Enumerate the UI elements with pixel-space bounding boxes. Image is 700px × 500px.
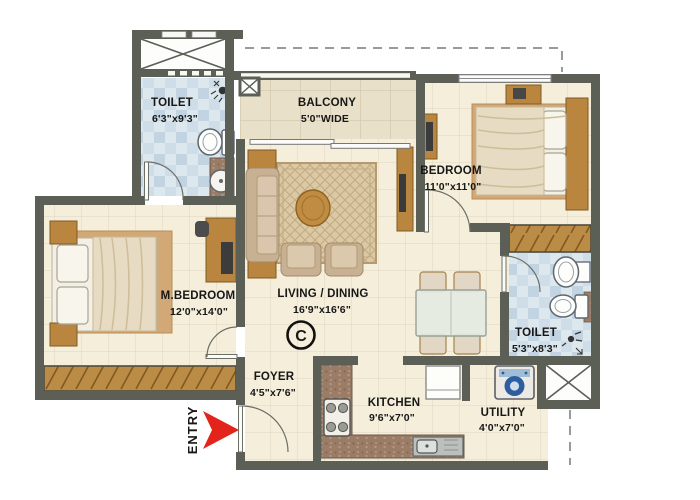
wardrobe [509,225,591,252]
balcony-name: BALCONY [298,97,356,109]
floor-plan-svg: TOILET 6'3"x9'3" BALCONY 5'0"WIDE BEDROO… [0,0,700,500]
kitchen-dims: 9'6"x7'0" [369,412,415,424]
toilet1-name: TOILET [151,97,193,109]
duct-shaft [141,39,225,69]
master-bedroom-name: M.BEDROOM [161,290,236,302]
armchair [281,243,321,276]
utility-name: UTILITY [481,407,526,419]
master-bedroom-dims: 12'0"x14'0" [170,306,228,318]
chair [195,221,209,237]
tv-screen [221,242,233,274]
kitchen-name: KITCHEN [368,397,421,409]
toilet2-name: TOILET [515,327,557,339]
pillow [57,287,88,324]
toilet1-dims: 6'3"x9'3" [152,113,198,125]
dining-chair [454,272,480,292]
floor-plan-image: TOILET 6'3"x9'3" BALCONY 5'0"WIDE BEDROO… [0,0,700,500]
vent [162,32,186,38]
living-dining-dims: 16'9"x16'6" [293,304,351,316]
foyer-name: FOYER [254,371,295,383]
armchair [325,243,363,276]
sliding-door [331,144,410,149]
bedroom-dims: 11'0"x11'0" [425,181,482,193]
utility-dims: 4'0"x7'0" [479,422,525,434]
headboard [566,98,588,210]
wardrobe [44,366,236,391]
washing-machine [495,366,534,399]
living-dining-name: LIVING / DINING [277,288,368,300]
utility-shaft [546,365,591,400]
balcony-dims: 5'0"WIDE [301,113,349,125]
copyright-letter: C [295,328,307,345]
dresser-item [513,88,526,99]
balcony-railing [241,73,410,78]
toilet2-dims: 5'3"x8'3" [512,343,558,355]
dining-chair [420,334,446,354]
sofa-cushions [257,176,277,254]
coffee-table [296,190,330,226]
balcony-floor [240,80,416,139]
dining-chair [454,334,480,354]
tv-screen [426,122,433,151]
bedroom-name: BEDROOM [420,165,481,177]
fridge [426,366,460,399]
wc-tank [575,295,588,318]
sliding-door [250,140,334,145]
pillow [57,245,88,282]
wc-icon [550,295,576,317]
duct-shaft-small [240,78,259,95]
dining-chair [420,272,446,292]
tv-screen [399,174,406,212]
nightstand [50,323,77,346]
blanket [476,107,544,195]
pillow [543,153,566,191]
entry-label: ENTRY [185,406,200,455]
vent [192,32,216,38]
wc-icon [198,129,222,155]
nightstand [50,221,77,244]
foyer-dims: 4'5"x7'6" [250,387,296,399]
